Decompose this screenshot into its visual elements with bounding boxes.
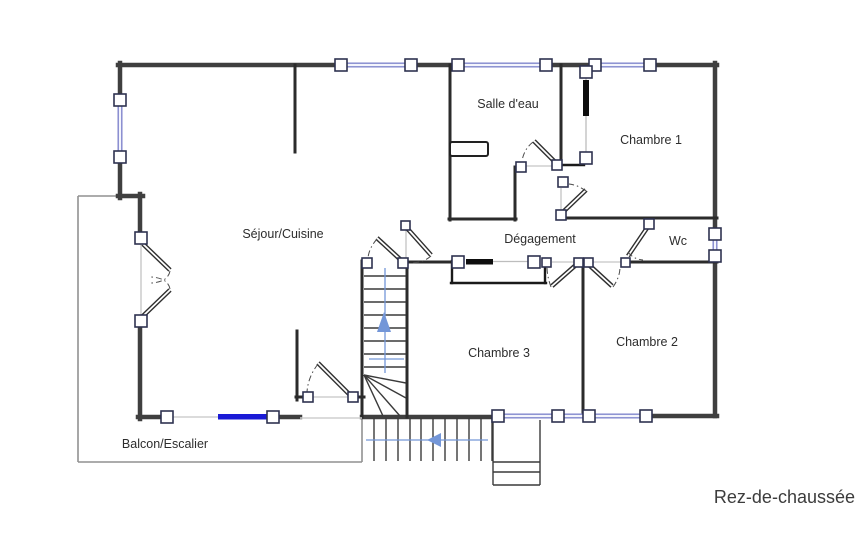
bathroom-counter [450, 142, 488, 156]
door-wc [628, 228, 647, 260]
door-vestibule [307, 363, 351, 396]
stairs-left-arrow-icon [366, 433, 488, 447]
room-label-salle-deau: Salle d'eau [477, 97, 539, 111]
room-label-chambre-3: Chambre 3 [468, 346, 530, 360]
french-door-balcony [143, 244, 170, 316]
sliding-door-chambre1 [583, 78, 589, 153]
room-label-degagement: Dégagement [504, 232, 576, 246]
exterior-landing [493, 418, 540, 485]
door-openings [141, 166, 621, 418]
door-salle-deau [522, 141, 556, 163]
door-chambre1 [562, 184, 586, 213]
interior-stairs [364, 268, 406, 416]
floor-plan-drawing: Salle d'eau Chambre 1 Séjour/Cuisine Dég… [0, 0, 865, 540]
floor-title: Rez-de-chaussée [714, 487, 855, 507]
stairs-up-arrow-icon [369, 268, 404, 373]
sliding-door-closet [466, 259, 529, 265]
room-label-balcon-escalier: Balcon/Escalier [122, 437, 208, 451]
room-label-chambre-1: Chambre 1 [620, 133, 682, 147]
exterior-stairs [366, 418, 540, 485]
floor-plan: Salle d'eau Chambre 1 Séjour/Cuisine Dég… [0, 0, 865, 540]
room-label-chambre-2: Chambre 2 [616, 335, 678, 349]
sliding-door-balcony [218, 414, 268, 420]
room-label-sejour-cuisine: Séjour/Cuisine [242, 227, 323, 241]
room-label-wc: Wc [669, 234, 687, 248]
